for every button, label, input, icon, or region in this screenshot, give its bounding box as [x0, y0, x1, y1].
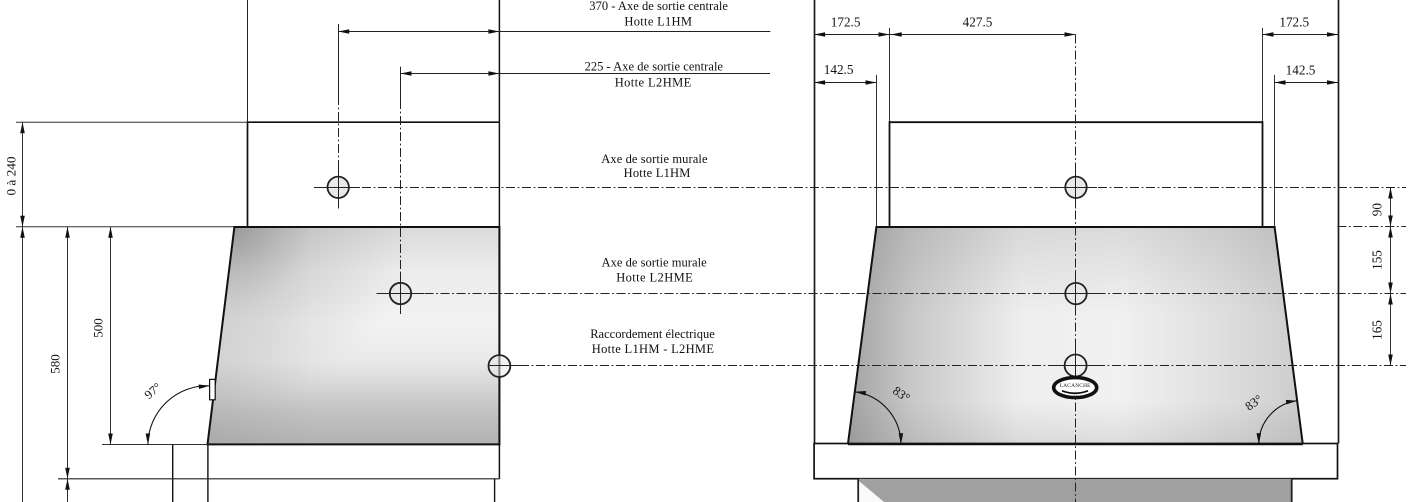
svg-text:0 à 240: 0 à 240	[5, 157, 19, 196]
svg-text:142.5: 142.5	[824, 62, 854, 77]
svg-text:172.5: 172.5	[1279, 15, 1309, 30]
svg-text:165: 165	[1370, 320, 1385, 340]
svg-text:142.5: 142.5	[1286, 62, 1316, 77]
svg-text:Hotte L1HM: Hotte L1HM	[624, 166, 691, 180]
svg-text:Hotte L2HME: Hotte L2HME	[616, 270, 693, 284]
svg-text:90: 90	[1370, 203, 1385, 217]
svg-text:500: 500	[91, 318, 106, 338]
svg-text:Hotte L1HM - L2HME: Hotte L1HM - L2HME	[592, 342, 715, 356]
svg-text:225 - Axe de sortie centrale: 225 - Axe de sortie centrale	[585, 59, 724, 73]
svg-text:Hotte L2HME: Hotte L2HME	[615, 76, 692, 90]
svg-text:Axe de sortie murale: Axe de sortie murale	[602, 256, 708, 270]
svg-text:155: 155	[1370, 250, 1385, 270]
svg-text:Axe de sortie murale: Axe de sortie murale	[601, 152, 708, 166]
svg-text:580: 580	[48, 354, 63, 374]
svg-text:LACANCHE: LACANCHE	[1060, 383, 1091, 389]
svg-text:Raccordement électrique: Raccordement électrique	[590, 327, 715, 341]
svg-text:172.5: 172.5	[831, 15, 861, 30]
svg-text:370 - Axe de sortie centrale: 370 - Axe de sortie centrale	[589, 0, 728, 13]
svg-text:97°: 97°	[142, 380, 164, 402]
svg-text:Hotte L1HM: Hotte L1HM	[624, 14, 692, 28]
svg-text:427.5: 427.5	[963, 15, 993, 30]
